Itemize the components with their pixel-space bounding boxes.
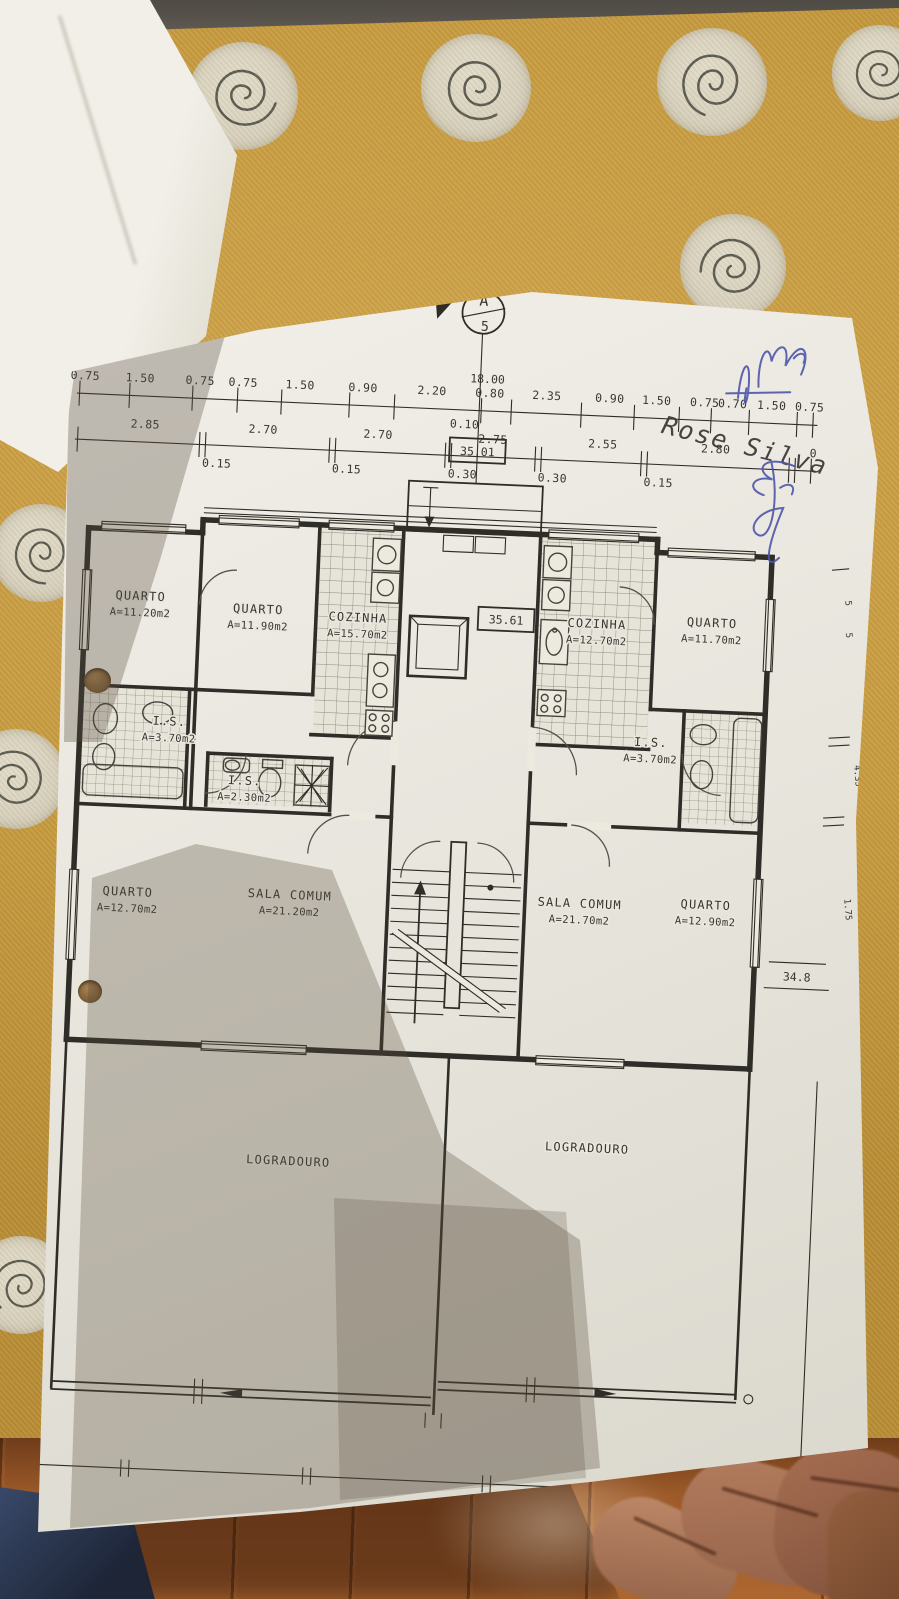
dim-value: 1.50 [642,393,672,408]
level-box-lobby: 35.61 [488,612,523,628]
margin-note: 5 [843,632,853,638]
dim-value: 0.90 [595,391,625,406]
room-area: A=21.20m2 [259,905,320,920]
dim-value: 0.75 [185,373,215,388]
cloth-circle [421,34,531,142]
room-area: A=11.20m2 [110,606,171,621]
paper-crease [58,15,137,265]
level-mark-right: 34.8 [783,969,811,984]
dim-value: 0.15 [202,456,232,471]
dim-value: 0.15 [643,475,673,490]
spiral-icon [680,214,786,320]
room-area: A=15.70m2 [327,627,388,642]
cloth-circle [680,214,786,320]
dim-total: 18.00 [470,371,505,387]
room-label: QUARTO [115,588,166,604]
spiral-icon [0,729,66,829]
room-label: SALA COMUM [537,895,622,913]
dim-value: 0.15 [332,461,362,476]
boundary-ticks [10,1046,728,1502]
dim-value: 0.30 [537,470,567,485]
spiral-icon [670,39,754,125]
room-area: A=12.70m2 [97,901,158,916]
yards [10,1038,820,1506]
dim-value: 2.70 [248,422,278,437]
room-area: A=3.70m2 [623,752,677,766]
dim-value: 0.75 [795,399,825,414]
dim-value: 1.50 [125,370,155,385]
dim-value: 2.20 [417,383,447,398]
photo-scene: A 5 [0,0,899,1599]
room-label: QUARTO [687,615,738,631]
room-label: I.S. [228,773,262,788]
spiral-icon [843,36,899,111]
dim-value: 2.35 [532,388,562,403]
level-box-top: 35.01 [460,444,495,460]
room-area: A=12.70m2 [566,634,627,649]
room-label: I.S. [634,735,668,750]
room-area: A=11.90m2 [227,619,288,634]
room-label: SALA COMUM [247,886,332,904]
room-label: LOGRADOURO [545,1139,630,1157]
signature: Rose Silva [659,410,831,481]
dim-value: 0.30 [447,466,477,481]
floorplan-svg: A 5 [0,268,884,1571]
dim-value: 1.50 [757,398,787,413]
margin-note: 1.75 [841,898,853,920]
dim-value: 2.70 [363,427,393,442]
room-label: COZINHA [567,616,627,633]
room-label: COZINHA [328,609,388,626]
dim-value: 0.80 [475,385,505,400]
margin-note: 5 [842,600,852,606]
dim-value: 0.90 [348,380,378,395]
dim-value: 0.70 [718,396,748,411]
dim-value: 2.85 [130,416,160,431]
room-label: QUARTO [680,897,731,913]
cloth-circle [657,28,767,136]
section-number: 5 [480,319,489,335]
right-margin-marks: 5 5 4.35 1.75 34.8 [764,566,872,992]
lobby: 35.61 [408,604,535,681]
handwriting: Rose Silva [654,342,836,564]
room-area: A=21.70m2 [549,913,610,928]
dim-value: 0.75 [690,395,720,410]
room-label: QUARTO [102,884,153,900]
spiral-icon [416,28,536,148]
room-area: A=11.70m2 [681,633,742,648]
hand-back [828,1490,899,1599]
room-label: QUARTO [233,601,284,617]
punch-hole [78,980,102,1003]
dim-value: 1.50 [285,377,315,392]
staircase [386,839,522,1026]
room-label: I.S. [152,714,186,729]
dim-value: 0.75 [228,375,258,390]
room-label: LOGRADOURO [246,1152,331,1170]
cloth-circle [832,25,899,121]
entry-porch: 35.01 [406,436,545,556]
dim-value: 0.10 [450,416,480,431]
punch-hole [84,668,111,693]
room-area: A=12.90m2 [675,915,736,930]
floor-plan-drawing: A 5 [0,268,884,1571]
room-area: A=3.70m2 [141,731,195,745]
room-area: A=2.30m2 [217,791,271,805]
dim-value: 2.55 [588,436,618,451]
cloth-circle [0,729,66,829]
